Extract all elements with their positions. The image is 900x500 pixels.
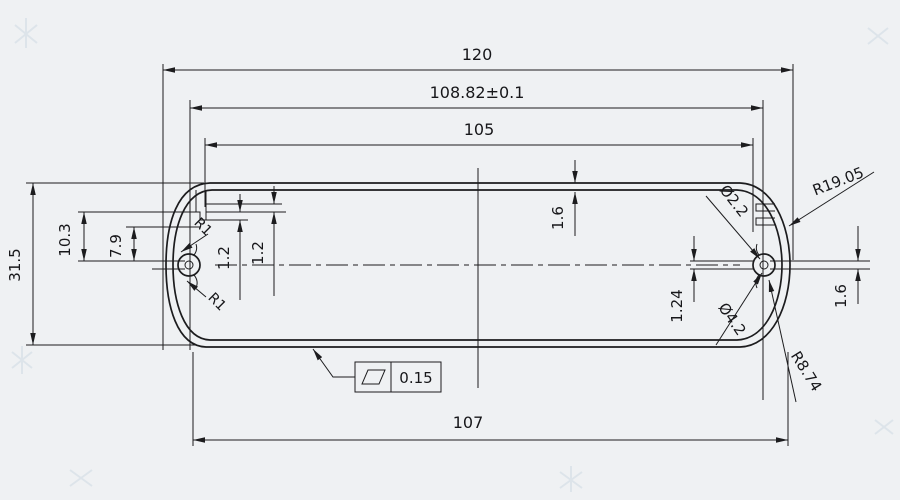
dim-tab-depth: 10.3 [56, 212, 84, 261]
pcb-rib-left [196, 190, 286, 220]
dim-overall-width-label: 120 [462, 45, 493, 64]
dim-end-slot-height-label: 1.6 [832, 284, 850, 308]
dim-rib-depth-label: 7.9 [107, 234, 125, 258]
leader-screw-hole-dia: Ø2.2 [706, 181, 760, 259]
dim-rib-step-b-label: 1.2 [249, 241, 267, 265]
dim-wall-thickness-label: 1.6 [549, 206, 567, 230]
dim-hole-spacing-label: 108.82±0.1 [430, 83, 525, 102]
gdt-flatness-frame: 0.15 [313, 349, 441, 392]
dim-tab-depth-label: 10.3 [56, 223, 74, 256]
dim-overall-height: 31.5 [6, 183, 33, 345]
dim-overall-width: 120 [163, 45, 793, 70]
leader-end-radius: R19.05 [789, 163, 874, 226]
right-screw-boss [690, 244, 870, 288]
leader-fillet-top-label: R1 [191, 215, 215, 239]
technical-drawing: 120 108.82±0.1 105 31.5 10.3 7.9 1.2 1.2… [0, 0, 900, 500]
leader-boss-dia-label: Ø4.2 [714, 299, 749, 339]
leader-screw-hole-dia-label: Ø2.2 [716, 181, 752, 220]
dim-rib-step-a-label: 1.2 [215, 246, 233, 270]
flatness-parallelogram-icon [362, 370, 385, 384]
dim-web-offset-label: 1.24 [668, 289, 686, 322]
dim-overall-height-label: 31.5 [6, 248, 24, 281]
dim-web-offset: 1.24 [668, 236, 694, 323]
profile-body [166, 168, 870, 388]
dim-rib-depth: 7.9 [107, 227, 134, 261]
dim-rib-step-b: 1.2 [249, 186, 274, 296]
dim-inner-width: 105 [205, 120, 753, 145]
dim-bottom-width-label: 107 [453, 413, 484, 432]
dim-inner-width-label: 105 [464, 120, 495, 139]
dim-hole-spacing: 108.82±0.1 [190, 83, 763, 108]
dim-end-slot-height: 1.6 [832, 226, 858, 308]
technical-drawing-page: 120 108.82±0.1 105 31.5 10.3 7.9 1.2 1.2… [0, 0, 900, 500]
leader-fillet-bottom: R1 [187, 281, 229, 314]
dim-wall-thickness: 1.6 [549, 160, 575, 236]
leader-fillet-bottom-label: R1 [205, 290, 229, 314]
dim-rib-step-a: 1.2 [215, 194, 240, 300]
extension-lines [26, 64, 793, 446]
gdt-flatness-value: 0.15 [399, 369, 432, 387]
leader-end-radius-label: R19.05 [810, 163, 866, 199]
dim-bottom-width: 107 [193, 413, 788, 440]
